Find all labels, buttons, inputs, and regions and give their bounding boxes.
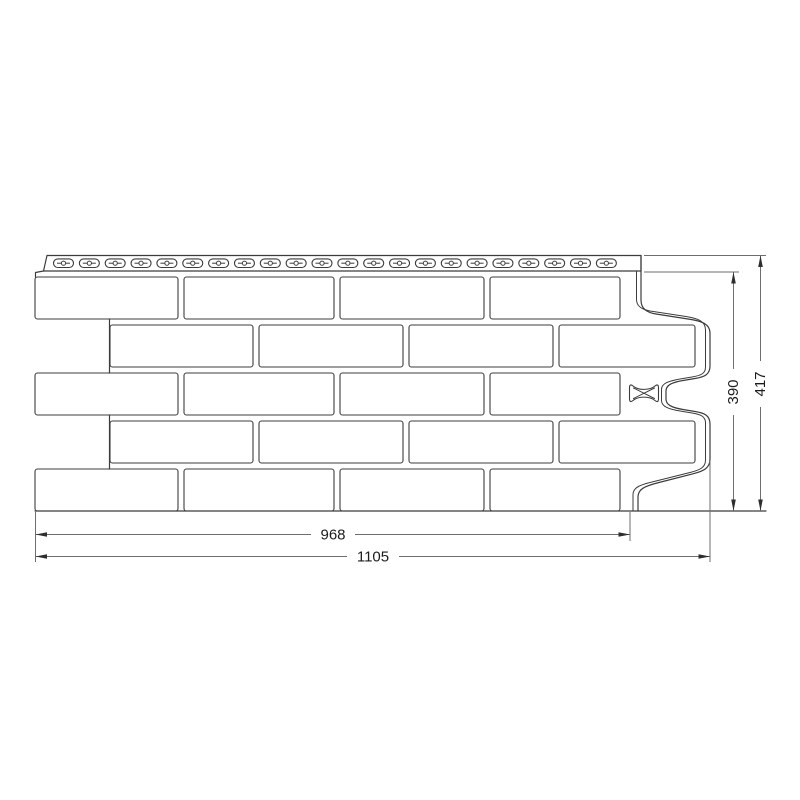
nail-slot — [183, 259, 203, 268]
nail-slot — [260, 259, 280, 268]
nail-slot — [105, 259, 125, 268]
nail-slot — [467, 259, 487, 268]
nail-slot — [519, 259, 539, 268]
nail-slot — [596, 259, 616, 268]
nail-slots — [54, 259, 617, 268]
arrow-right-1105 — [699, 554, 711, 559]
dimension-label-total-width: 1105 — [357, 549, 389, 566]
dimension-label-panel-width: 968 — [320, 527, 345, 544]
brick — [184, 373, 334, 415]
nail-slot — [338, 259, 358, 268]
nail-slot — [571, 259, 591, 268]
brick — [110, 421, 253, 463]
brick — [259, 421, 403, 463]
arrow-top-390 — [731, 272, 736, 284]
drawing-page: 968 1105 390 417 — [0, 0, 800, 800]
brick — [184, 469, 334, 511]
panel-right-contour — [633, 256, 710, 512]
nail-slot — [157, 259, 177, 268]
dimension-968: 968 — [36, 527, 631, 544]
brick — [559, 325, 695, 367]
brick — [184, 277, 334, 319]
nail-slot — [545, 259, 565, 268]
brick — [259, 325, 403, 367]
brand-logo-mark — [630, 385, 659, 402]
nail-slot — [234, 259, 254, 268]
nail-slot — [54, 259, 74, 268]
nail-slot — [312, 259, 332, 268]
nail-slot — [131, 259, 151, 268]
brick — [490, 469, 620, 511]
brick — [340, 469, 484, 511]
brick — [409, 325, 553, 367]
arrow-bottom-417 — [758, 500, 763, 512]
nail-slot — [286, 259, 306, 268]
brick-grid — [35, 277, 695, 511]
brick — [559, 421, 695, 463]
brick — [340, 277, 484, 319]
nail-slot — [415, 259, 435, 268]
nail-strip — [36, 256, 642, 278]
brick — [35, 469, 178, 511]
dimension-label-total-height: 417 — [752, 371, 769, 396]
arrow-left-968 — [36, 532, 48, 537]
arrow-top-417 — [758, 256, 763, 268]
brick — [490, 277, 620, 319]
nail-slot — [79, 259, 99, 268]
technical-drawing-canvas: 968 1105 390 417 — [0, 0, 800, 800]
dimension-417: 417 — [752, 256, 769, 512]
nail-slot — [364, 259, 384, 268]
dimension-label-panel-height: 390 — [725, 379, 742, 404]
brick — [35, 277, 178, 319]
right-contour-outer — [638, 256, 710, 512]
dimension-390: 390 — [725, 272, 742, 511]
brick — [110, 325, 253, 367]
nail-slot — [209, 259, 229, 268]
arrow-right-968 — [619, 532, 631, 537]
arrow-left-1105 — [36, 554, 48, 559]
nail-strip-left-step — [36, 271, 44, 277]
brick — [340, 373, 484, 415]
brick — [490, 373, 620, 415]
dimension-1105: 1105 — [36, 549, 711, 566]
nail-slot — [441, 259, 461, 268]
nail-slot — [390, 259, 410, 268]
brick — [35, 373, 178, 415]
nail-slot — [493, 259, 513, 268]
brick — [409, 421, 553, 463]
arrow-bottom-390 — [731, 500, 736, 512]
